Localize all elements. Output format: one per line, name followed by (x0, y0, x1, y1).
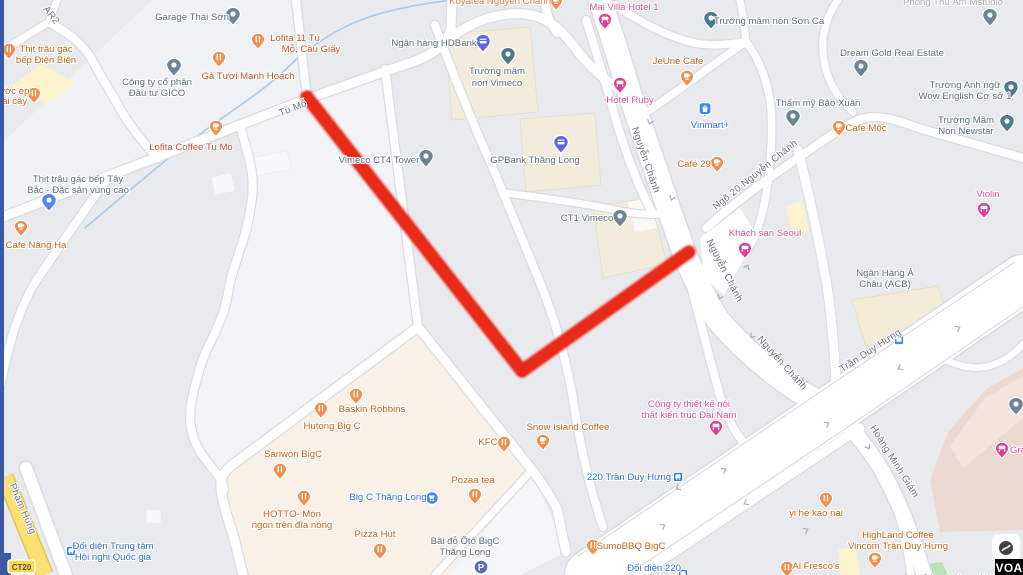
svg-text:Violin: Violin (976, 189, 999, 200)
svg-text:CT1 Vimeco: CT1 Vimeco (561, 213, 614, 224)
svg-text:bếp Điện Biên: bếp Điện Biên (16, 55, 76, 66)
svg-text:Hotel Ruby: Hotel Ruby (606, 95, 654, 106)
svg-text:Công ty cổ phần: Công ty cổ phần (122, 77, 192, 88)
svg-text:HOTTO- Món: HOTTO- Món (263, 509, 321, 520)
svg-text:Trường Anh ngữ: Trường Anh ngữ (929, 80, 1001, 91)
svg-text:JeUne Cafe: JeUne Cafe (653, 56, 704, 67)
svg-text:Pizza Hut: Pizza Hut (354, 529, 395, 540)
svg-text:Đối diện Trung tâm: Đối diện Trung tâm (72, 541, 153, 552)
svg-text:Khách sạn Seoul: Khách sạn Seoul (729, 228, 802, 239)
svg-text:Ngân hàng HDBank: Ngân hàng HDBank (391, 38, 477, 49)
svg-text:Gà Tươi Mạnh Hoạch: Gà Tươi Mạnh Hoạch (201, 71, 294, 82)
svg-text:Non Newstar: Non Newstar (938, 126, 994, 137)
svg-text:Hutong Big C: Hutong Big C (303, 421, 360, 432)
svg-text:Big C Thăng Long: Big C Thăng Long (349, 492, 426, 503)
svg-text:non Vimeco: non Vimeco (472, 78, 523, 89)
svg-text:Koyatea Nguyễn Chánh: Koyatea Nguyễn Chánh (449, 0, 551, 7)
svg-text:KFC: KFC (478, 437, 497, 448)
svg-text:Vinmart+: Vinmart+ (691, 120, 730, 131)
svg-text:Sariwon BigC: Sariwon BigC (264, 449, 322, 460)
svg-text:Châu (ACB): Châu (ACB) (859, 279, 911, 290)
svg-text:Phòng Thu Âm Mstudio: Phòng Thu Âm Mstudio (903, 0, 1003, 8)
svg-text:HighLand Coffee: HighLand Coffee (862, 530, 934, 541)
svg-text:220 Trần Duy Hưng: 220 Trần Duy Hưng (587, 472, 671, 483)
svg-text:Wow English Cơ sở 1: Wow English Cơ sở 1 (919, 91, 1012, 102)
svg-text:Cafe Nâng Hạ: Cafe Nâng Hạ (6, 240, 67, 251)
svg-text:Lofita Coffee Tu Mo: Lofita Coffee Tu Mo (149, 142, 233, 153)
svg-text:ngon trên đĩa nóng: ngon trên đĩa nóng (252, 520, 333, 531)
svg-text:Trường Mầm: Trường Mầm (938, 115, 994, 126)
svg-text:Đối diện 220: Đối diện 220 (627, 563, 681, 574)
svg-text:SumoBBQ BigC: SumoBBQ BigC (597, 541, 666, 552)
svg-text:Bãi đỗ Ôtô BigC: Bãi đỗ Ôtô BigC (431, 536, 500, 547)
svg-text:CT20: CT20 (12, 563, 32, 572)
svg-text:Thăng Long: Thăng Long (439, 547, 490, 558)
svg-text:Snow Island Coffee: Snow Island Coffee (526, 422, 609, 433)
svg-text:Bắc - Đặc sản vùng cao: Bắc - Đặc sản vùng cao (27, 185, 129, 196)
svg-text:Đầu tư GICO: Đầu tư GICO (129, 88, 186, 99)
svg-text:Café 29: Café 29 (677, 159, 711, 170)
svg-text:thất kiến trúc Đại Nam: thất kiến trúc Đại Nam (642, 410, 737, 421)
svg-text:Trường mầm: Trường mầm (469, 66, 525, 77)
svg-text:Vincom Trần Duy Hưng: Vincom Trần Duy Hưng (848, 541, 948, 552)
svg-text:Mai Villa Hotel 1: Mai Villa Hotel 1 (589, 2, 658, 13)
svg-text:Pozaa tea: Pozaa tea (451, 475, 495, 486)
svg-text:Dream Gold Real Estate: Dream Gold Real Estate (840, 48, 944, 59)
svg-text:Thẩm mỹ Bảo Xuân: Thẩm mỹ Bảo Xuân (776, 98, 861, 109)
svg-text:VOA: VOA (996, 561, 1023, 575)
svg-text:Trường mầm non Sơn Ca: Trường mầm non Sơn Ca (714, 16, 825, 27)
svg-text:Thịt trâu gác bếp Tây: Thịt trâu gác bếp Tây (33, 174, 124, 185)
svg-text:rái cây: rái cây (0, 96, 27, 107)
svg-text:Ngân Hàng Á: Ngân Hàng Á (856, 268, 914, 279)
svg-text:Mỗ, Cầu Giấy: Mỗ, Cầu Giấy (282, 44, 341, 55)
svg-text:Cafe Mộc: Cafe Mộc (845, 123, 886, 134)
svg-text:Hội nghị Quốc gia: Hội nghị Quốc gia (75, 552, 152, 563)
svg-text:Baskin Robbins: Baskin Robbins (339, 404, 406, 415)
svg-text:Thịt trâu gác: Thịt trâu gác (19, 44, 73, 55)
svg-text:Grà: Grà (1010, 445, 1023, 456)
svg-text:Vimeco CT4 Tower: Vimeco CT4 Tower (339, 155, 420, 166)
svg-text:GPBank Thăng Long: GPBank Thăng Long (490, 155, 579, 166)
svg-text:Garage Thái Sơn: Garage Thái Sơn (155, 12, 229, 23)
svg-text:Công ty thiết kế nội: Công ty thiết kế nội (648, 399, 730, 410)
svg-text:Lofita 11 Tú: Lofita 11 Tú (270, 33, 320, 44)
svg-text:Al Fresco's: Al Fresco's (792, 561, 839, 572)
svg-text:yi he kao nai: yi he kao nai (789, 508, 843, 519)
